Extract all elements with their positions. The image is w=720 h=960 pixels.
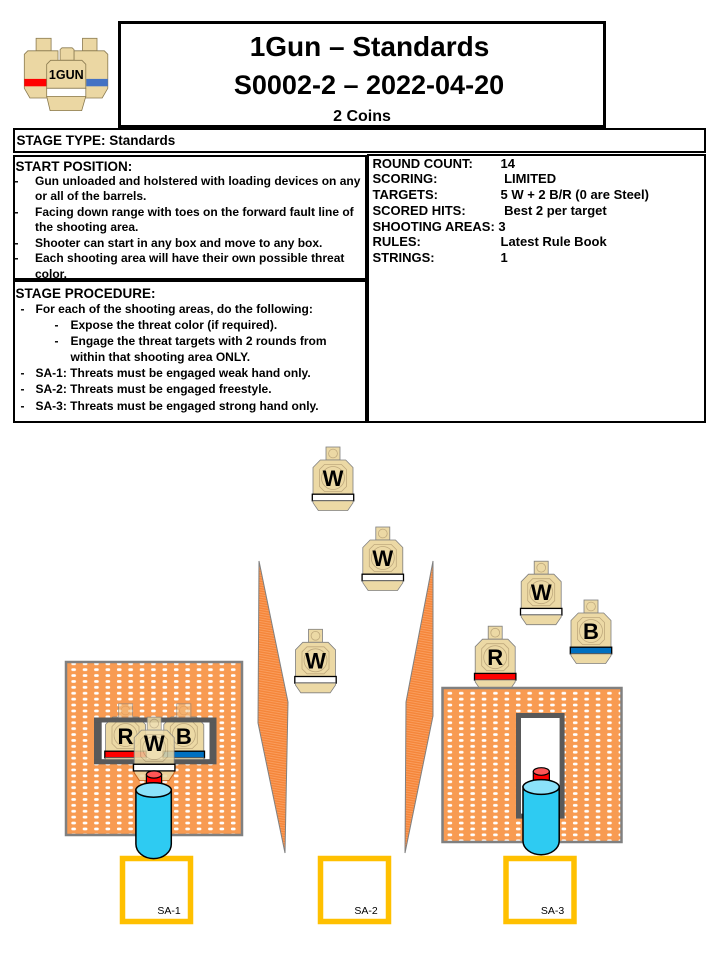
svg-text:W: W	[531, 580, 552, 605]
svg-text:W: W	[144, 731, 165, 756]
svg-text:B: B	[176, 724, 192, 749]
svg-text:R: R	[487, 645, 503, 670]
svg-text:B: B	[583, 619, 599, 644]
svg-text:R: R	[118, 724, 134, 749]
svg-text:W: W	[372, 546, 393, 571]
svg-text:SA-1: SA-1	[157, 905, 181, 917]
svg-text:SA-3: SA-3	[541, 905, 565, 917]
svg-text:W: W	[323, 466, 344, 491]
svg-text:W: W	[305, 648, 326, 673]
svg-text:SA-2: SA-2	[354, 905, 378, 917]
